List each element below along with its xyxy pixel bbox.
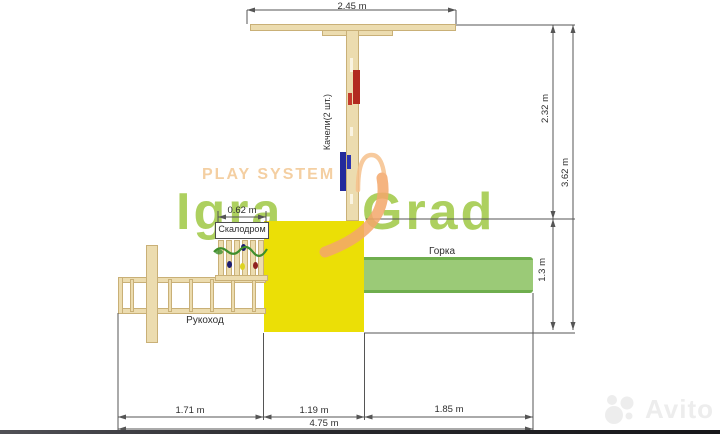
- brand-swing-glyph-icon: [315, 148, 395, 263]
- blueprint-canvas: PLAY SYSTEM Igra Grad: [0, 0, 720, 434]
- dim-right-upper: 2.32 m: [540, 94, 551, 123]
- swings-label: Качели(2 шт.): [322, 94, 332, 150]
- wall-slat: [218, 240, 224, 276]
- dim-climb-width: 0.62 m: [214, 205, 270, 216]
- wall-slat: [250, 240, 256, 276]
- ladder-end-cap: [118, 277, 123, 314]
- ladder-rung: [130, 279, 134, 312]
- swing-chain-red: [348, 93, 352, 105]
- climbing-hold: [240, 263, 245, 270]
- ladder-rung: [189, 279, 193, 312]
- swing-seat-red: [353, 70, 360, 104]
- dim-bottom-total: 4.75 m: [284, 418, 364, 429]
- avito-logo-icon: [601, 392, 641, 426]
- wall-slat: [234, 240, 240, 276]
- climbing-hold: [253, 262, 258, 269]
- bottom-edge-strip: [0, 430, 720, 434]
- dim-bottom-mid: 1.19 m: [274, 405, 354, 416]
- wall-sill: [215, 275, 268, 281]
- post-slot: [350, 127, 353, 136]
- dim-bottom-right: 1.85 m: [409, 404, 489, 415]
- slide-label: Горка: [414, 246, 470, 257]
- dim-top-width: 2.45 m: [312, 1, 392, 12]
- dim-right-total: 3.62 m: [560, 158, 571, 187]
- avito-watermark: Avito: [601, 392, 714, 426]
- climbing-hold: [227, 261, 232, 268]
- climbing-wall-label: Скалодром: [215, 222, 269, 239]
- ladder-rung: [231, 279, 235, 312]
- avito-wordmark: Avito: [645, 394, 714, 425]
- post-slot: [350, 58, 353, 72]
- dim-right-lower: 1.3 m: [537, 258, 548, 282]
- ladder-support-post: [146, 245, 158, 343]
- dim-bottom-left: 1.71 m: [150, 405, 230, 416]
- ladder-rung: [252, 279, 256, 312]
- wall-slat: [258, 240, 264, 276]
- ladder-rung: [168, 279, 172, 312]
- ladder-rung: [210, 279, 214, 312]
- monkey-bars-label: Рукоход: [175, 315, 235, 326]
- climbing-hold: [241, 244, 246, 251]
- wall-slat: [226, 240, 232, 276]
